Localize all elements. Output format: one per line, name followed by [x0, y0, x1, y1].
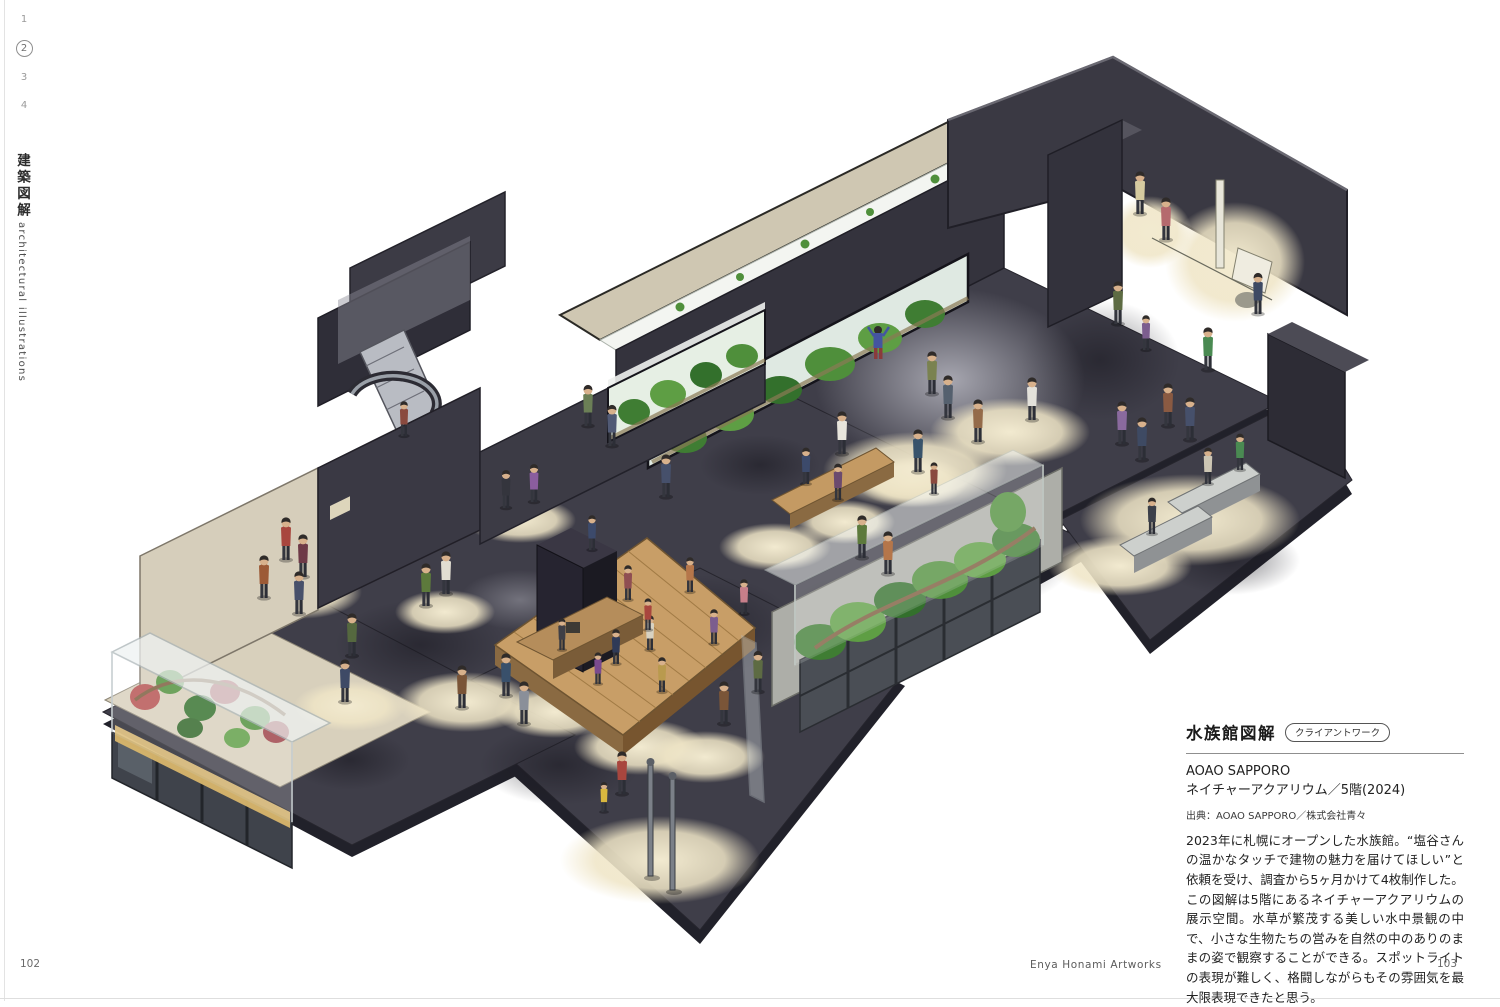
- work-subtitle: ネイチャーアクアリウム／5階(2024): [1186, 782, 1464, 801]
- page-number-left: 102: [20, 958, 40, 970]
- page-number-right: 103: [1437, 958, 1457, 970]
- footer-book-title: Enya Honami Artworks: [1030, 959, 1162, 971]
- caption-title: 水族館図解: [1186, 720, 1276, 744]
- work-credit: 出典：AOAO SAPPORO／株式会社青々: [1186, 807, 1464, 822]
- caption-block: 水族館図解 クライアントワーク AOAO SAPPORO ネイチャーアクアリウム…: [1186, 720, 1464, 1007]
- caption-divider: [1186, 753, 1464, 754]
- client-work-badge: クライアントワーク: [1285, 723, 1390, 742]
- work-title: AOAO SAPPORO: [1186, 763, 1464, 782]
- caption-paragraph-1: 2023年に札幌にオープンした水族館。“塩谷さんの温かなタッチで建物の魅力を届け…: [1186, 831, 1464, 890]
- caption-paragraph-2: この図解は5階にあるネイチャーアクアリウムの展示空間。水草が繁茂する美しい水中景…: [1186, 890, 1464, 1007]
